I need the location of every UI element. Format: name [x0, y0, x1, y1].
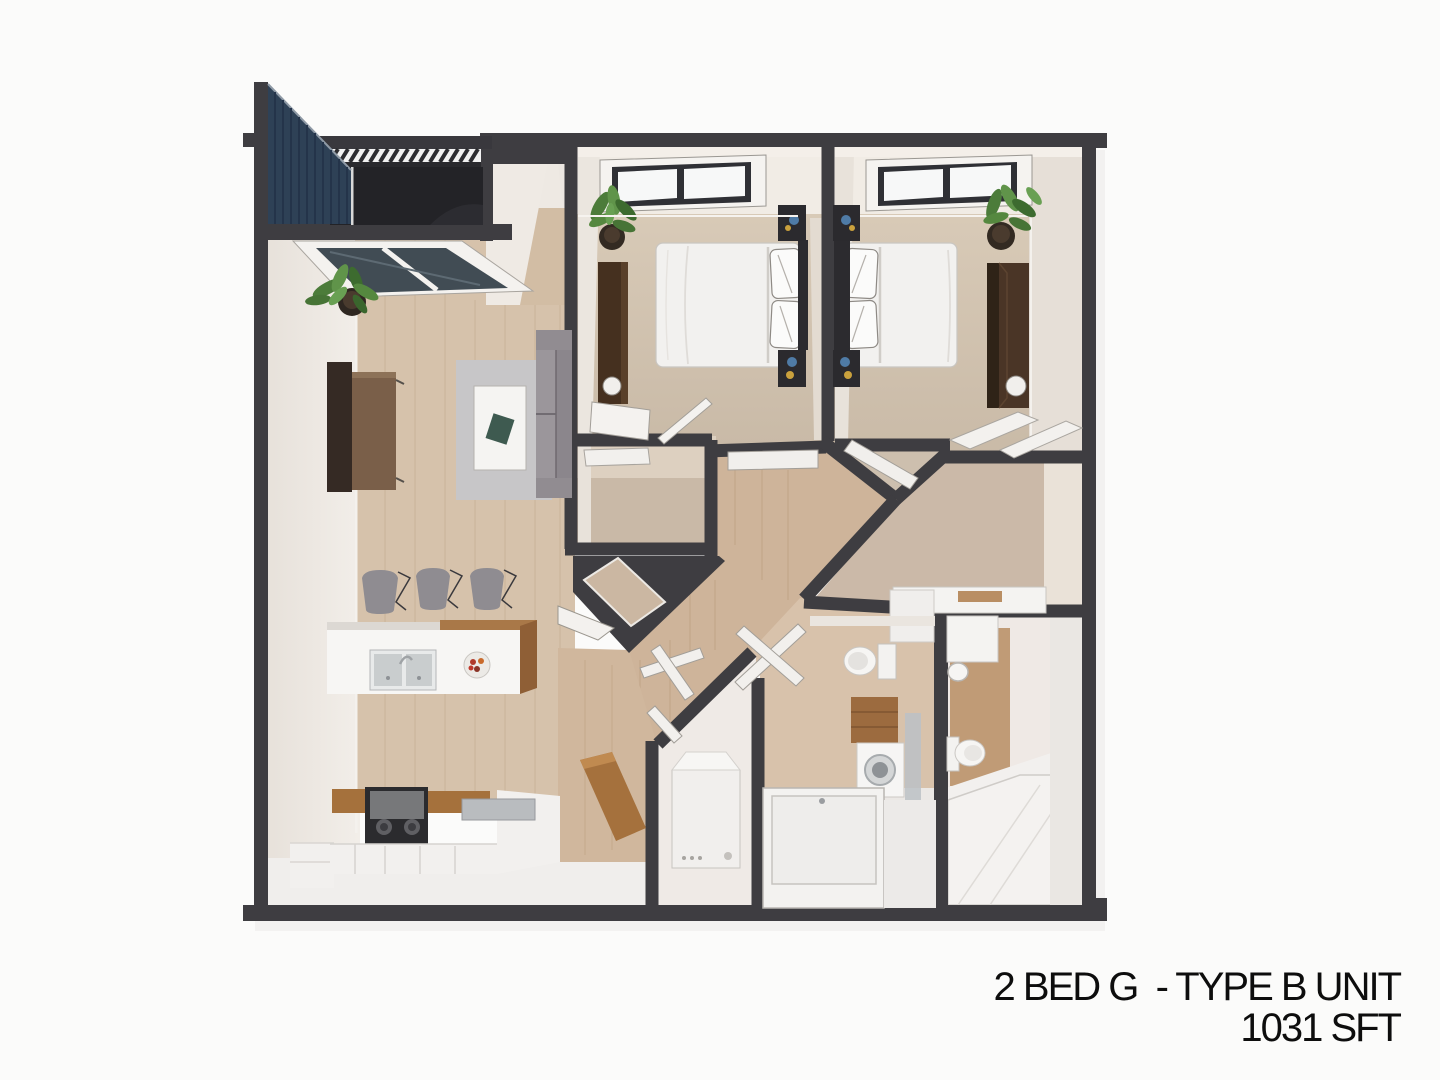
svg-text:2 BED G - TYPE B UNIT: 2 BED G - TYPE B UNIT: [994, 965, 1402, 1009]
svg-text:1031 SFT: 1031 SFT: [1240, 1006, 1401, 1050]
